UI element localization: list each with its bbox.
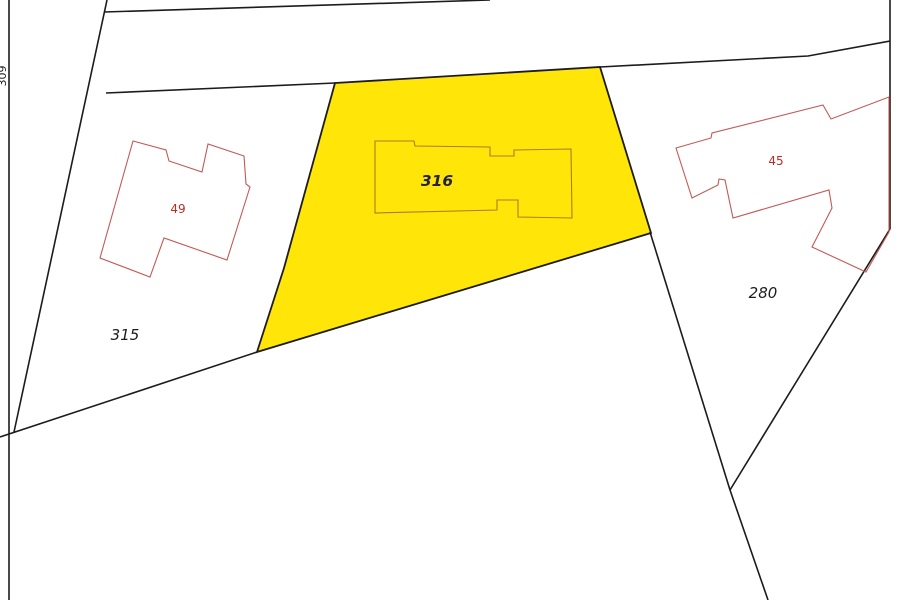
parcel-label-315: 315 [111,326,140,344]
parcel-label-309: 309 [0,66,9,87]
parcel-label-280: 280 [749,284,778,302]
building-label-45: 45 [768,154,783,168]
building-label-49: 49 [170,202,185,216]
boundary-top-line [104,0,490,12]
parcel-280[interactable] [600,41,890,490]
parcel-label-316: 316 [421,172,454,190]
boundary-bottom-continuation [730,490,768,600]
cadastral-map: 3163152804945309 [0,0,900,600]
map-viewport: 3163152804945309 [0,0,900,600]
